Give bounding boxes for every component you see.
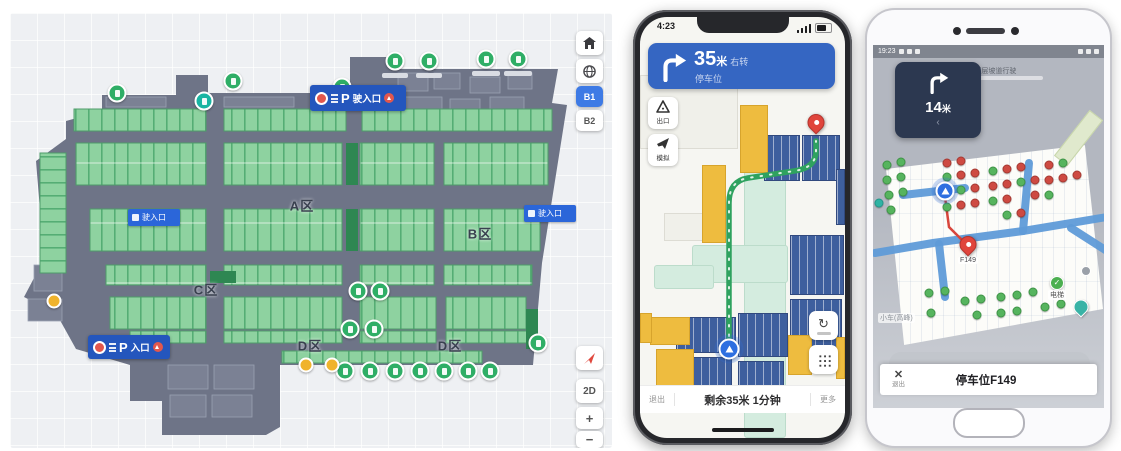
- quit-nav-button[interactable]: 退出: [640, 394, 674, 405]
- camera-dot: [953, 27, 961, 35]
- spot-phone-screen: 19:23 ←(下层坡道行驶 14米 ‹ F149 ✓ 电梯 小车(高峰) ✕ …: [873, 45, 1104, 408]
- pillar-marker[interactable]: [47, 294, 62, 309]
- zoom-in-label: +: [586, 411, 594, 426]
- entrance-sign-label: 入口: [131, 340, 150, 354]
- up-arrow-icon: [153, 342, 163, 352]
- parking-floor-map[interactable]: [10, 13, 612, 448]
- free-spot-marker[interactable]: [887, 206, 896, 215]
- occupied-spot-marker[interactable]: [1017, 209, 1026, 218]
- free-spot-marker[interactable]: [897, 173, 906, 182]
- parking-p: P: [119, 341, 128, 354]
- turn-card[interactable]: 14米 ‹: [895, 62, 981, 138]
- home-button[interactable]: [576, 31, 603, 55]
- entrance-sign-small[interactable]: 驶入口: [128, 209, 180, 226]
- locate-button[interactable]: [576, 346, 603, 370]
- mode-2d-label: 2D: [583, 386, 596, 397]
- elevator-marker[interactable]: [459, 362, 478, 381]
- occupied-spot-marker[interactable]: [1031, 191, 1040, 200]
- grid-dots-icon: [817, 353, 831, 367]
- remaining-text: 剩余35米 1分钟: [675, 392, 810, 408]
- corner-map-label: 小车(高峰): [878, 313, 915, 323]
- escalator-marker[interactable]: [195, 92, 214, 111]
- free-spot-marker[interactable]: [1045, 191, 1054, 200]
- close-label: 退出: [892, 382, 905, 389]
- collapse-chevron[interactable]: ‹: [936, 118, 939, 128]
- free-spot-marker[interactable]: [1041, 303, 1050, 312]
- nav-bottom-bar: 退出 剩余35米 1分钟 更多: [640, 385, 845, 413]
- free-spot-marker[interactable]: [997, 293, 1006, 302]
- battery-icon: [815, 23, 832, 33]
- compass-label-chip: [817, 332, 831, 335]
- p-circle-icon: [93, 341, 106, 354]
- plane-icon: [656, 137, 670, 155]
- home-indicator[interactable]: [712, 428, 774, 432]
- free-spot-marker[interactable]: [899, 188, 908, 197]
- free-spot-marker[interactable]: [1013, 307, 1022, 316]
- turn-right-icon: [926, 72, 950, 99]
- marker-label-chip: [382, 73, 408, 78]
- elevator-marker[interactable]: [481, 362, 500, 381]
- free-spot-marker[interactable]: [973, 311, 982, 320]
- more-button[interactable]: 更多: [811, 394, 845, 405]
- gate-icon: [331, 94, 338, 103]
- camera-dot: [1011, 27, 1019, 35]
- occupied-spot-marker[interactable]: [943, 159, 952, 168]
- nav-instruction-banner: 35米右转 停车位: [648, 43, 835, 89]
- occupied-spot-marker[interactable]: [1031, 176, 1040, 185]
- elevator-marker[interactable]: [371, 282, 390, 301]
- speaker-slot: [966, 28, 1005, 34]
- entrance-sign-label: 驶入口: [142, 212, 166, 223]
- status-time: 4:23: [657, 21, 675, 31]
- special-spot-marker[interactable]: [875, 199, 884, 208]
- floor-button-b2[interactable]: B2: [576, 110, 603, 131]
- entrance-sign[interactable]: P入口: [88, 335, 170, 359]
- floor-b2-label: B2: [584, 116, 596, 126]
- free-spot-marker[interactable]: [885, 191, 894, 200]
- free-spot-marker[interactable]: [943, 203, 952, 212]
- nav-phone-frame: 4:23 35米右转 停车位 出口 模拟 ↻ 退: [633, 10, 852, 445]
- occupied-spot-marker[interactable]: [957, 171, 966, 180]
- status-time: 19:23: [878, 48, 896, 55]
- elevator-poi-marker[interactable]: ✓: [1050, 276, 1064, 290]
- free-spot-marker[interactable]: [883, 161, 892, 170]
- close-icon: ✕: [894, 370, 903, 381]
- more-tools-button[interactable]: [809, 345, 838, 374]
- exit-button[interactable]: 出口: [648, 97, 678, 129]
- zone-label: D区: [298, 336, 322, 355]
- home-icon: [583, 37, 596, 49]
- marker-label-chip: [416, 73, 442, 78]
- grey-dot-marker: [1081, 266, 1091, 276]
- spot-status-bar: 19:23: [873, 45, 1104, 58]
- elevator-marker[interactable]: [361, 362, 380, 381]
- zone-label: A区: [290, 196, 314, 215]
- globe-icon: [583, 65, 596, 78]
- free-spot-marker[interactable]: [997, 309, 1006, 318]
- elevator-marker[interactable]: [365, 320, 384, 339]
- elevator-marker[interactable]: [224, 72, 243, 91]
- rotate-icon: ↻: [818, 317, 829, 330]
- globe-button[interactable]: [576, 59, 603, 83]
- notification-icon: [899, 49, 904, 54]
- locate-arrow-icon: [583, 352, 596, 365]
- elevator-marker[interactable]: [349, 282, 368, 301]
- battery-icon: [1094, 49, 1099, 54]
- occupied-spot-marker[interactable]: [1073, 171, 1082, 180]
- zone-label: D区: [438, 336, 462, 355]
- occupied-spot-marker[interactable]: [957, 157, 966, 166]
- elevator-marker[interactable]: [386, 362, 405, 381]
- gate-icon: [109, 343, 116, 352]
- elevator-marker[interactable]: [341, 320, 360, 339]
- occupied-spot-marker[interactable]: [971, 199, 980, 208]
- free-spot-marker[interactable]: [925, 289, 934, 298]
- parking-map-panel: B1 B2 2D + − A区B区C区D区D区P驶入口P入口驶入口驶入口: [10, 13, 612, 448]
- entrance-sign-label: 驶入口: [353, 91, 382, 105]
- occupied-spot-marker[interactable]: [957, 201, 966, 210]
- spot-phone-frame: 19:23 ←(下层坡道行驶 14米 ‹ F149 ✓ 电梯 小车(高峰) ✕ …: [865, 8, 1112, 448]
- elevator-marker[interactable]: [420, 52, 439, 71]
- floor-button-b1[interactable]: B1: [576, 86, 603, 107]
- elevator-marker[interactable]: [108, 84, 127, 103]
- pillar-marker[interactable]: [299, 358, 314, 373]
- signal-icon: [1078, 49, 1083, 54]
- elevator-marker[interactable]: [386, 52, 405, 71]
- free-spot-marker[interactable]: [897, 158, 906, 167]
- spot-bottom-bar: ✕ 退出 停车位F149: [880, 364, 1097, 395]
- status-icons: [797, 23, 832, 33]
- close-button[interactable]: ✕ 退出: [892, 370, 905, 389]
- entrance-sign-small[interactable]: 驶入口: [524, 205, 576, 222]
- free-spot-marker[interactable]: [977, 295, 986, 304]
- elevator-marker[interactable]: [477, 50, 496, 69]
- distance-text: 35米右转: [694, 49, 748, 69]
- free-spot-marker[interactable]: [943, 173, 952, 182]
- simulate-button-label: 模拟: [657, 156, 670, 163]
- elevator-marker[interactable]: [411, 362, 430, 381]
- elevator-marker[interactable]: [509, 50, 528, 69]
- free-spot-marker[interactable]: [883, 176, 892, 185]
- home-button-physical[interactable]: [953, 408, 1025, 438]
- zone-label: C区: [194, 280, 218, 299]
- destination-text: 停车位: [695, 72, 722, 85]
- signal-icon: [797, 30, 799, 33]
- free-spot-marker[interactable]: [1059, 159, 1068, 168]
- elevator-marker[interactable]: [435, 362, 454, 381]
- simulate-button[interactable]: 模拟: [648, 134, 678, 166]
- compass-button[interactable]: ↻: [809, 311, 838, 340]
- marker-label-chip: [504, 71, 532, 76]
- entrance-sign[interactable]: P驶入口: [310, 85, 406, 111]
- occupied-spot-marker[interactable]: [989, 182, 998, 191]
- spot-pin-label: F149: [958, 257, 978, 264]
- nav-phone-screen: 4:23 35米右转 停车位 出口 模拟 ↻ 退: [640, 17, 845, 438]
- free-spot-marker[interactable]: [927, 309, 936, 318]
- occupied-spot-marker[interactable]: [1045, 161, 1054, 170]
- current-location-puck: [936, 182, 955, 201]
- p-circle-icon: [315, 92, 328, 105]
- occupied-spot-marker[interactable]: [1045, 176, 1054, 185]
- distance-text: 14米: [925, 100, 951, 117]
- exit-icon: [656, 100, 670, 118]
- occupied-spot-marker[interactable]: [1017, 163, 1026, 172]
- phone-notch: [697, 17, 789, 33]
- occupied-spot-marker[interactable]: [1003, 195, 1012, 204]
- free-spot-marker[interactable]: [1029, 288, 1038, 297]
- entrance-sign-label: 驶入口: [538, 208, 562, 219]
- free-spot-marker[interactable]: [961, 297, 970, 306]
- occupied-spot-marker[interactable]: [1003, 165, 1012, 174]
- elevator-marker[interactable]: [529, 334, 548, 353]
- free-spot-marker[interactable]: [989, 167, 998, 176]
- free-spot-marker[interactable]: [957, 186, 966, 195]
- floor-b1-label: B1: [584, 92, 596, 102]
- spot-title: 停车位F149: [905, 372, 1067, 388]
- exit-button-label: 出口: [657, 119, 670, 126]
- free-spot-marker[interactable]: [989, 197, 998, 206]
- free-spot-marker[interactable]: [1003, 211, 1012, 220]
- free-spot-marker[interactable]: [1013, 291, 1022, 300]
- current-location-puck: [719, 339, 740, 360]
- marker-label-chip: [472, 71, 500, 76]
- free-spot-marker[interactable]: [1057, 300, 1066, 309]
- up-arrow-icon: [384, 93, 394, 103]
- zoom-out-button[interactable]: −: [576, 431, 603, 448]
- pillar-marker[interactable]: [325, 358, 340, 373]
- free-spot-marker[interactable]: [1017, 178, 1026, 187]
- zoom-out-label: −: [586, 432, 594, 447]
- sign-icon: [132, 214, 139, 221]
- zoom-in-button[interactable]: +: [576, 407, 603, 429]
- occupied-spot-marker[interactable]: [971, 169, 980, 178]
- sign-icon: [528, 210, 535, 217]
- occupied-spot-marker[interactable]: [971, 184, 980, 193]
- occupied-spot-marker[interactable]: [1059, 174, 1068, 183]
- zone-label: B区: [468, 224, 492, 243]
- parking-p: P: [341, 92, 350, 105]
- elevator-poi-label: 电梯: [1048, 290, 1066, 300]
- occupied-spot-marker[interactable]: [1003, 180, 1012, 189]
- mode-2d-button[interactable]: 2D: [576, 379, 603, 403]
- free-spot-marker[interactable]: [941, 287, 950, 296]
